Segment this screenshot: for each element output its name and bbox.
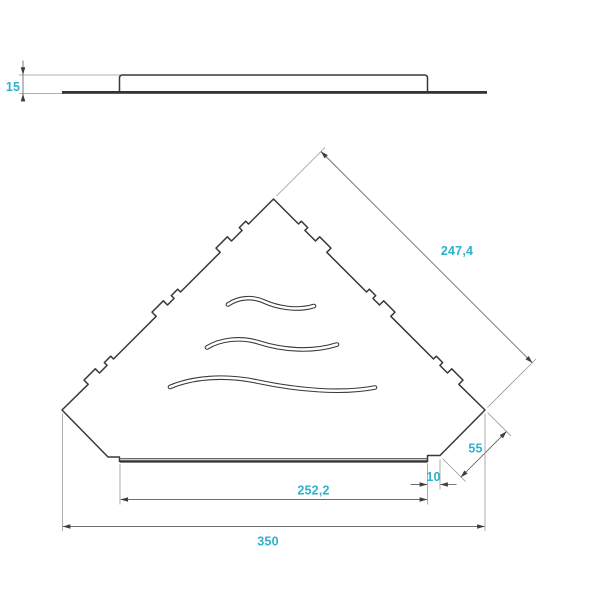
extension-line	[488, 413, 512, 437]
corner-cut-dimension: 55	[443, 413, 512, 482]
lip-inset-dimension: 10	[411, 460, 457, 505]
lip-width-dim-label: 252,2	[297, 484, 329, 498]
lip-inset-dim-label: 10	[426, 470, 440, 484]
overall-width-dimension: 350	[63, 414, 486, 549]
side-profile-base-plate	[62, 91, 487, 94]
top-view: 247,4 55 10 252,2	[62, 148, 536, 549]
extension-line	[277, 148, 326, 197]
drain-slot-wave-1	[228, 298, 314, 308]
thickness-dimension: 15	[6, 61, 23, 102]
extension-line	[443, 459, 466, 482]
drain-slot-wave-3	[170, 378, 375, 391]
overall-width-dim-label: 350	[257, 535, 278, 549]
side-profile-raised-body	[120, 75, 428, 91]
technical-drawing-canvas: 15 247,4 55	[0, 0, 600, 600]
corner-cut-dim-label: 55	[468, 442, 482, 456]
shelf-outline	[62, 199, 485, 462]
diagonal-dim-label: 247,4	[441, 244, 473, 258]
corner-shelf-drawing: 15 247,4 55	[0, 0, 600, 600]
extension-line	[488, 359, 537, 408]
lip-width-dimension: 252,2	[120, 464, 427, 505]
drain-slot-wave-2	[207, 339, 337, 349]
thickness-dim-label: 15	[6, 80, 20, 94]
dimension-line	[321, 152, 532, 363]
diagonal-edge-dimension: 247,4	[277, 148, 537, 408]
side-profile-view: 15	[6, 61, 487, 102]
